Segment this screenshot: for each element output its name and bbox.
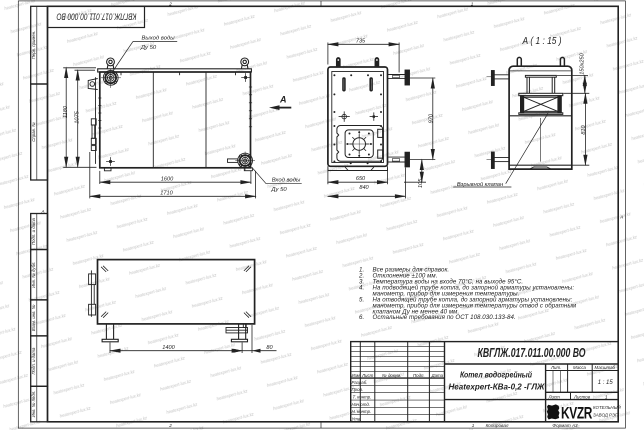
svg-text:970: 970 xyxy=(429,113,435,123)
svg-text:2: 2 xyxy=(168,1,172,6)
svg-text:Копировал: Копировал xyxy=(486,423,509,428)
svg-text:105: 105 xyxy=(418,178,424,188)
svg-text:650: 650 xyxy=(356,176,366,182)
svg-text:1180: 1180 xyxy=(63,105,69,118)
svg-text:Н. контр.: Н. контр. xyxy=(352,409,372,414)
svg-text:5.: 5. xyxy=(359,296,364,303)
svg-text:Формат А3: Формат А3 xyxy=(552,423,578,428)
svg-text:Взам. инв. №: Взам. инв. № xyxy=(31,304,36,331)
svg-text:1 : 15: 1 : 15 xyxy=(598,380,614,386)
svg-text:Масса: Масса xyxy=(573,365,587,370)
svg-text:80: 80 xyxy=(266,345,273,351)
svg-text:KVZR: KVZR xyxy=(561,404,592,422)
svg-text:Heatexpert-КВа-0,2 -ГЛЖ: Heatexpert-КВа-0,2 -ГЛЖ xyxy=(449,381,546,391)
svg-text:1710: 1710 xyxy=(160,190,173,196)
svg-text:КОТЕЛЬНЫЙ: КОТЕЛЬНЫЙ xyxy=(593,405,621,410)
svg-text:ЗАВОД РЭП: ЗАВОД РЭП xyxy=(593,413,619,418)
svg-text:Вход воды: Вход воды xyxy=(272,178,301,184)
svg-text:Утв.: Утв. xyxy=(352,417,362,422)
svg-text:А: А xyxy=(619,215,623,220)
svg-text:Подп. и дата: Подп. и дата xyxy=(31,347,36,375)
svg-text:1075: 1075 xyxy=(74,110,80,123)
svg-text:810: 810 xyxy=(581,124,587,134)
svg-text:Выход воды: Выход воды xyxy=(141,36,175,42)
svg-text:1600: 1600 xyxy=(161,176,174,182)
svg-text:Котел водогрейный: Котел водогрейный xyxy=(460,370,533,380)
svg-text:2: 2 xyxy=(168,423,172,428)
svg-text:КВГЛЖ.017.011.00.000 ВО: КВГЛЖ.017.011.00.000 ВО xyxy=(57,11,137,21)
svg-text:Листов: Листов xyxy=(573,394,591,399)
svg-text:А: А xyxy=(279,95,287,105)
svg-text:А ( 1 : 15 ): А ( 1 : 15 ) xyxy=(522,36,562,47)
svg-text:Т. контр.: Т. контр. xyxy=(353,395,372,400)
svg-text:Разраб.: Разраб. xyxy=(352,380,368,385)
svg-text:1400: 1400 xyxy=(162,345,175,351)
svg-text:Подп.: Подп. xyxy=(413,373,425,378)
svg-text:Перв. примен.: Перв. примен. xyxy=(31,31,36,60)
svg-text:150х250: 150х250 xyxy=(579,52,585,74)
svg-text:735: 735 xyxy=(356,39,366,45)
svg-text:Лист: Лист xyxy=(361,373,374,378)
svg-text:6.: 6. xyxy=(359,314,364,321)
svg-text:Подп. и дата: Подп. и дата xyxy=(31,217,36,245)
svg-text:Нач.отд.: Нач.отд. xyxy=(352,402,371,407)
svg-text:Масштаб: Масштаб xyxy=(595,365,616,370)
svg-text:КВГЛЖ.017.011.00.000 ВО: КВГЛЖ.017.011.00.000 ВО xyxy=(478,346,586,360)
svg-text:Лист: Лист xyxy=(548,394,561,399)
svg-text:Ду 50: Ду 50 xyxy=(270,187,287,193)
svg-text:Пров.: Пров. xyxy=(352,387,364,392)
svg-text:№ докум.: № докум. xyxy=(382,373,401,378)
svg-text:Остальные требования по ОСТ 10: Остальные требования по ОСТ 108.030.133-… xyxy=(373,314,516,321)
svg-text:Лит.: Лит. xyxy=(550,365,561,370)
svg-text:840: 840 xyxy=(359,185,369,191)
svg-text:Справ. №: Справ. № xyxy=(31,122,36,142)
svg-text:1: 1 xyxy=(471,1,474,6)
svg-text:1: 1 xyxy=(472,423,475,428)
svg-text:Ду 50: Ду 50 xyxy=(140,45,157,51)
svg-text:Инв. № подл.: Инв. № подл. xyxy=(31,391,36,418)
svg-text:Взрывной клапан: Взрывной клапан xyxy=(457,181,504,188)
svg-text:Инв. № дубл.: Инв. № дубл. xyxy=(31,261,36,287)
svg-text:Дата: Дата xyxy=(431,373,444,378)
svg-text:4.: 4. xyxy=(359,285,364,292)
svg-text:Изм: Изм xyxy=(352,373,360,378)
